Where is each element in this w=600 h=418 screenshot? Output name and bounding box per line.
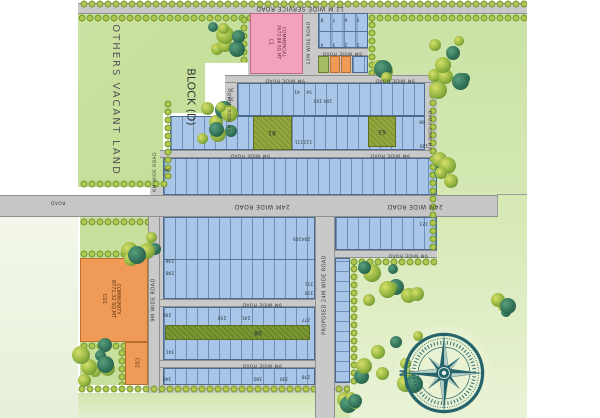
plot-number: 341 bbox=[166, 348, 175, 353]
compass-rose: N bbox=[398, 327, 490, 418]
plot-number: 32 bbox=[228, 95, 234, 100]
plot-number: 30 bbox=[228, 86, 234, 91]
plot-number: 204 bbox=[302, 235, 311, 240]
plot-number: 123 bbox=[420, 220, 429, 225]
plot-number: 104 bbox=[324, 97, 333, 102]
plot-number: 236 bbox=[166, 257, 175, 262]
plot-number: 290 bbox=[163, 311, 172, 316]
plot-number: 311 bbox=[305, 280, 314, 285]
plot-number: 63 bbox=[378, 128, 386, 134]
plot-number: 103 bbox=[314, 97, 323, 102]
plot-number: 66 bbox=[419, 118, 425, 123]
plot-numbers-layer: 8765432130324154103104111112816366120961… bbox=[0, 0, 600, 418]
compass-north-label: N bbox=[398, 369, 408, 376]
plot-number: 300 bbox=[254, 375, 263, 380]
plot-number: 4 bbox=[321, 41, 324, 46]
plot-number: 111 bbox=[295, 138, 304, 143]
plot-number: 54 bbox=[306, 88, 312, 93]
plot-number: 310 bbox=[305, 289, 314, 294]
plot-number: 2 bbox=[345, 41, 348, 46]
plot-number: 98 bbox=[254, 329, 262, 335]
plot-number: 298 bbox=[166, 269, 175, 274]
plot-number: 205 bbox=[293, 235, 302, 240]
plot-number: 6 bbox=[345, 16, 348, 21]
plot-number: 41 bbox=[294, 88, 300, 93]
plot-number: 7 bbox=[333, 16, 336, 21]
plot-number: 3 bbox=[333, 41, 336, 46]
plot-number: 120 bbox=[420, 142, 429, 147]
plot-number: 1 bbox=[357, 41, 360, 46]
plot-number: 96 bbox=[164, 166, 170, 171]
plot-number: 8 bbox=[321, 16, 324, 21]
plot-number: 81 bbox=[268, 129, 276, 135]
plot-number: 330 bbox=[280, 375, 289, 380]
plot-number: 278 bbox=[302, 373, 311, 378]
site-plan-map: OTHERS VACANT LAND BLOCK (D) COMMERCIAL … bbox=[0, 0, 600, 418]
plot-number: 112 bbox=[304, 138, 313, 143]
plot-number: 5 bbox=[357, 16, 360, 21]
plot-number: 340 bbox=[163, 375, 172, 380]
plot-number: 277 bbox=[302, 316, 311, 321]
plot-number: 250 bbox=[218, 314, 227, 319]
plot-number: 241 bbox=[242, 314, 251, 319]
